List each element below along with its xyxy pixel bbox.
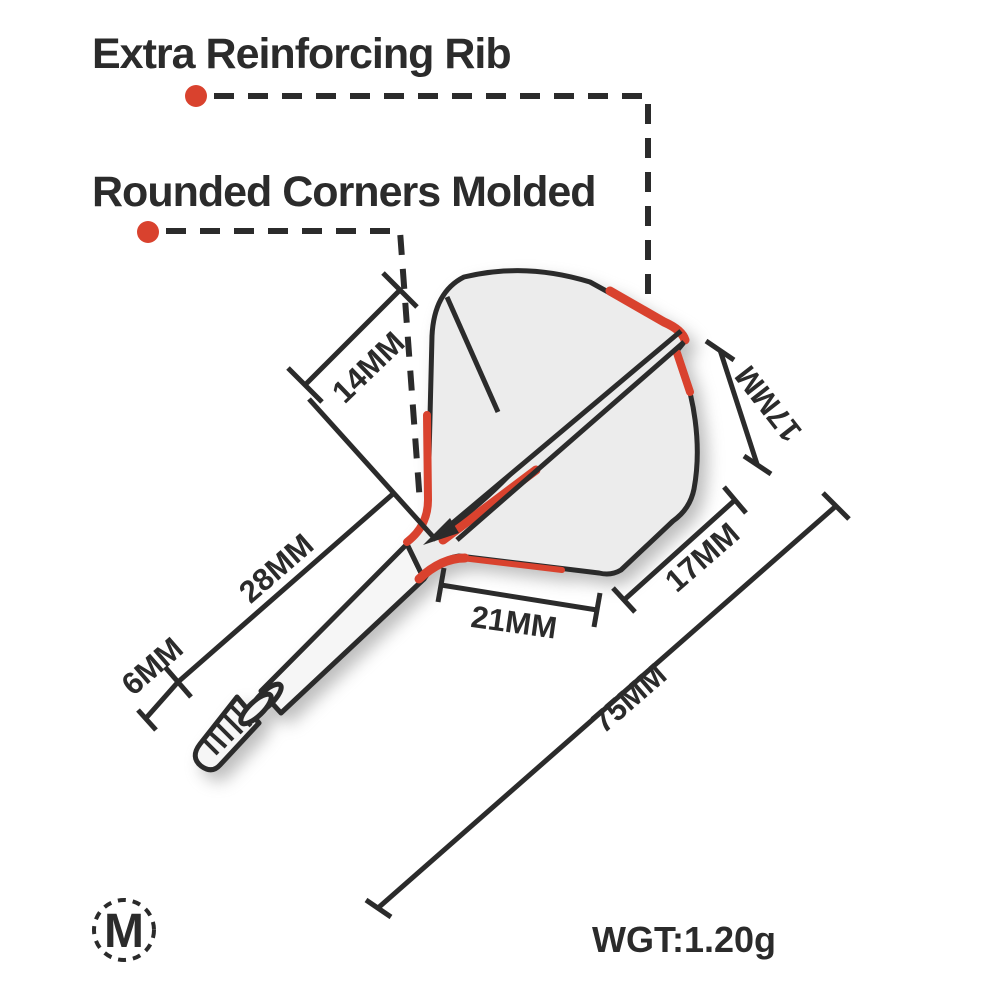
callout-extra-rib-label: Extra Reinforcing Rib: [92, 30, 511, 78]
dimension-label-21mm: 21MM: [469, 599, 559, 646]
dimension-17mm-side: 17MM: [706, 341, 809, 474]
dart-spec-diagram: Extra Reinforcing Rib Rounded Corners Mo…: [0, 0, 1005, 1005]
red-dot-icon: [185, 85, 207, 107]
callout-rounded-corners-label: Rounded Corners Molded: [92, 168, 596, 216]
brand-logo: M: [94, 900, 154, 960]
callout-extra-rib: Extra Reinforcing Rib: [92, 30, 648, 302]
dimension-21mm: 21MM: [438, 568, 600, 646]
dimension-label-6mm: 6MM: [115, 630, 190, 702]
dimension-label-75mm: 75MM: [585, 657, 673, 740]
dimension-label-14mm: 14MM: [325, 325, 411, 410]
diagram-canvas: Extra Reinforcing Rib Rounded Corners Mo…: [0, 0, 1005, 1005]
logo-letter: M: [104, 905, 144, 958]
red-dot-icon: [137, 221, 159, 243]
weight-label: WGT:1.20g: [592, 919, 776, 960]
